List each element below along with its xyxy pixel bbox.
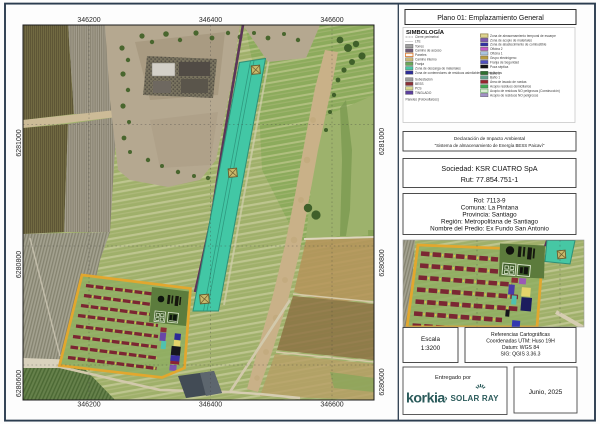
svg-text:Comuna: La Pintana: Comuna: La Pintana <box>461 205 519 212</box>
svg-text:Torres: Torres <box>415 44 424 48</box>
svg-text:Coordenadas UTM: Huso 19H: Coordenadas UTM: Huso 19H <box>486 339 555 345</box>
svg-text:›: › <box>445 393 448 403</box>
svg-text:Escala: Escala <box>421 336 440 343</box>
svg-text:Datum: WGS 84: Datum: WGS 84 <box>502 345 539 351</box>
svg-text:6281000: 6281000 <box>379 128 386 155</box>
svg-text:Acopio residuos domiciliarios: Acopio residuos domiciliarios <box>490 85 532 89</box>
svg-text:Baño 1: Baño 1 <box>490 76 500 80</box>
svg-text:"Sistema de almacenamiento de: "Sistema de almacenamiento de Energía BE… <box>435 143 545 148</box>
svg-text:Paneles (Fotovoltaicos): Paneles (Fotovoltaicos) <box>406 97 439 101</box>
svg-text:Referencias Cartográficas: Referencias Cartográficas <box>491 332 550 338</box>
svg-text:Paneles: Paneles <box>415 53 427 57</box>
svg-text:Oficina 2: Oficina 2 <box>490 47 503 51</box>
svg-text:Plano 01: Emplazamiento Genera: Plano 01: Emplazamiento General <box>437 15 544 22</box>
svg-text:Acopio de residuos NO peligros: Acopio de residuos NO peligrosos (Constr… <box>490 89 560 93</box>
svg-text:Área de lavado de ruedas: Área de lavado de ruedas <box>490 80 527 84</box>
svg-text:346400: 346400 <box>199 402 222 409</box>
svg-text:Franja: Franja <box>415 62 424 66</box>
svg-text:Subestación: Subestación <box>415 78 433 82</box>
svg-text:346200: 346200 <box>77 17 100 24</box>
svg-text:Junio, 2025: Junio, 2025 <box>529 389 563 396</box>
svg-text:Zona de abastecimiento de comb: Zona de abastecimiento de combustible <box>490 43 547 47</box>
svg-text:6280600: 6280600 <box>379 368 386 395</box>
svg-text:346600: 346600 <box>320 402 343 409</box>
svg-text:346400: 346400 <box>199 17 222 24</box>
svg-text:Región: Metropolitana de Santi: Región: Metropolitana de Santiago <box>441 219 538 226</box>
svg-text:Camino de acceso: Camino de acceso <box>415 49 442 53</box>
svg-text:Provincia: Santiago: Provincia: Santiago <box>462 212 517 219</box>
svg-text:Grupo electrógeno: Grupo electrógeno <box>490 56 517 60</box>
svg-text:6280800: 6280800 <box>16 251 23 278</box>
svg-text:Cierre perimetral: Cierre perimetral <box>415 35 439 39</box>
svg-text:Rut: 77.854.751-1: Rut: 77.854.751-1 <box>461 175 519 184</box>
svg-text:korkia: korkia <box>406 391 445 407</box>
svg-text:346600: 346600 <box>320 17 343 24</box>
svg-text:Acopio de residuos NO peligros: Acopio de residuos NO peligrosos <box>490 93 539 97</box>
svg-text:346200: 346200 <box>77 402 100 409</box>
svg-text:Rol: 7113-9: Rol: 7113-9 <box>473 198 506 205</box>
svg-text:1:3200: 1:3200 <box>421 345 441 352</box>
svg-text:PCS: PCS <box>415 87 422 91</box>
svg-text:Sociedad: KSR CUATRO SpA: Sociedad: KSR CUATRO SpA <box>441 164 537 173</box>
svg-text:Entregado por: Entregado por <box>435 375 471 381</box>
svg-text:SIG: QGIS 3.36.3: SIG: QGIS 3.36.3 <box>501 352 541 358</box>
svg-text:Zona de descarga de materiales: Zona de descarga de materiales <box>415 66 461 70</box>
svg-text:6281000: 6281000 <box>16 129 23 156</box>
svg-text:SOLAR RAY: SOLAR RAY <box>451 394 500 403</box>
svg-text:Declaración de Impacto Ambient: Declaración de Impacto Ambiental <box>454 136 525 141</box>
svg-text:Baño 2: Baño 2 <box>490 71 500 75</box>
svg-text:Oficina 1: Oficina 1 <box>490 52 503 56</box>
svg-text:BESS: BESS <box>415 82 424 86</box>
svg-text:Nombre del Predio: Ex Fundo Sa: Nombre del Predio: Ex Fundo San Antonio <box>430 226 549 233</box>
svg-text:6280600: 6280600 <box>16 370 23 397</box>
svg-text:TINGLADO: TINGLADO <box>415 91 432 95</box>
svg-text:LTE: LTE <box>415 40 421 44</box>
svg-text:Poza séptica: Poza séptica <box>490 65 508 69</box>
svg-text:Zona de acopio de materiales: Zona de acopio de materiales <box>490 38 532 42</box>
svg-text:Zona de almacenamiento tempora: Zona de almacenamiento temporal de escar… <box>490 34 556 38</box>
svg-text:6280800: 6280800 <box>379 249 386 276</box>
svg-text:Camino interno: Camino interno <box>415 58 437 62</box>
svg-text:Franja de Seguridad: Franja de Seguridad <box>490 60 519 64</box>
